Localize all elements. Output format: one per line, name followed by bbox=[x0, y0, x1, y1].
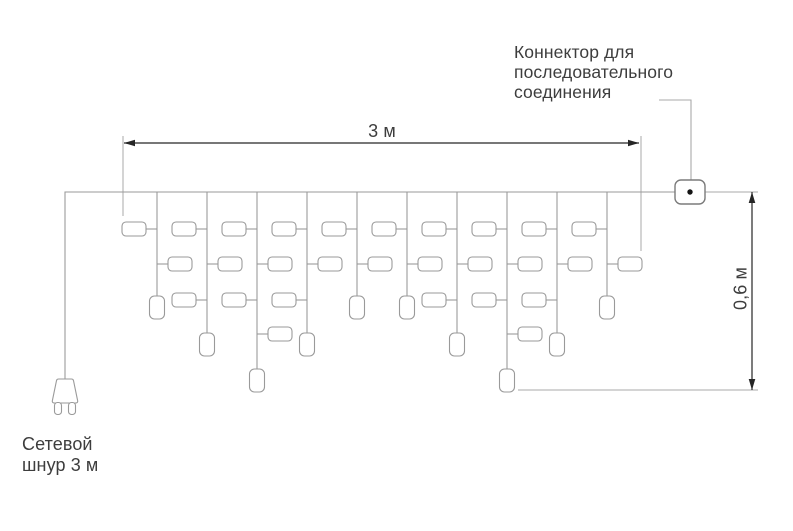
pendant-bulb-icon bbox=[600, 296, 615, 319]
pendant-bulb-icon bbox=[300, 333, 315, 356]
bulb-icon bbox=[368, 257, 392, 271]
power-plug-body-icon bbox=[52, 379, 77, 403]
bulb-icon bbox=[272, 293, 296, 307]
bulb-icon bbox=[422, 293, 446, 307]
icicle-string-diagram bbox=[0, 0, 793, 531]
pendant-bulb-icon bbox=[350, 296, 365, 319]
bulb-icon bbox=[472, 293, 496, 307]
bulb-icon bbox=[222, 293, 246, 307]
height-dimension-arrow-top-icon bbox=[749, 192, 756, 203]
pendant-bulb-icon bbox=[550, 333, 565, 356]
bulb-icon bbox=[122, 222, 146, 236]
bulb-icon bbox=[522, 293, 546, 307]
power-plug-prong-icon bbox=[69, 403, 76, 415]
bulb-icon bbox=[522, 222, 546, 236]
bulb-icon bbox=[372, 222, 396, 236]
bulb-icon bbox=[472, 222, 496, 236]
power-plug-prong-icon bbox=[55, 403, 62, 415]
pendant-bulb-icon bbox=[400, 296, 415, 319]
pendant-bulb-icon bbox=[250, 369, 265, 392]
bulb-icon bbox=[518, 257, 542, 271]
bulb-icon bbox=[222, 222, 246, 236]
bulb-icon bbox=[422, 222, 446, 236]
pendant-bulb-icon bbox=[150, 296, 165, 319]
width-dimension-label: 3 м bbox=[352, 122, 412, 140]
bulb-icon bbox=[172, 222, 196, 236]
pendant-bulb-icon bbox=[450, 333, 465, 356]
connector-label: Коннектор для последовательного соединен… bbox=[514, 42, 673, 102]
bulb-icon bbox=[418, 257, 442, 271]
connector-dot-icon bbox=[687, 189, 692, 194]
bulb-icon bbox=[218, 257, 242, 271]
bulb-icon bbox=[168, 257, 192, 271]
bulb-icon bbox=[568, 257, 592, 271]
bulb-icon bbox=[318, 257, 342, 271]
power-cord-label: Сетевой шнур 3 м bbox=[22, 434, 98, 476]
width-dimension-arrow-right-icon bbox=[628, 140, 639, 147]
bulb-icon bbox=[172, 293, 196, 307]
bulb-icon bbox=[572, 222, 596, 236]
icicle-lights-diagram-canvas: Коннектор для последовательного соединен… bbox=[0, 0, 793, 531]
bulb-icon bbox=[468, 257, 492, 271]
height-dimension-label: 0,6 м bbox=[731, 254, 752, 324]
pendant-bulb-icon bbox=[200, 333, 215, 356]
width-dimension-arrow-left-icon bbox=[124, 140, 135, 147]
pendant-bulb-icon bbox=[500, 369, 515, 392]
bulb-icon bbox=[268, 327, 292, 341]
bulb-icon bbox=[518, 327, 542, 341]
bulb-icon bbox=[618, 257, 642, 271]
connector-leader-line bbox=[659, 100, 691, 180]
bulb-icon bbox=[268, 257, 292, 271]
bulb-icon bbox=[322, 222, 346, 236]
bulb-icon bbox=[272, 222, 296, 236]
height-dimension-arrow-bottom-icon bbox=[749, 379, 756, 390]
